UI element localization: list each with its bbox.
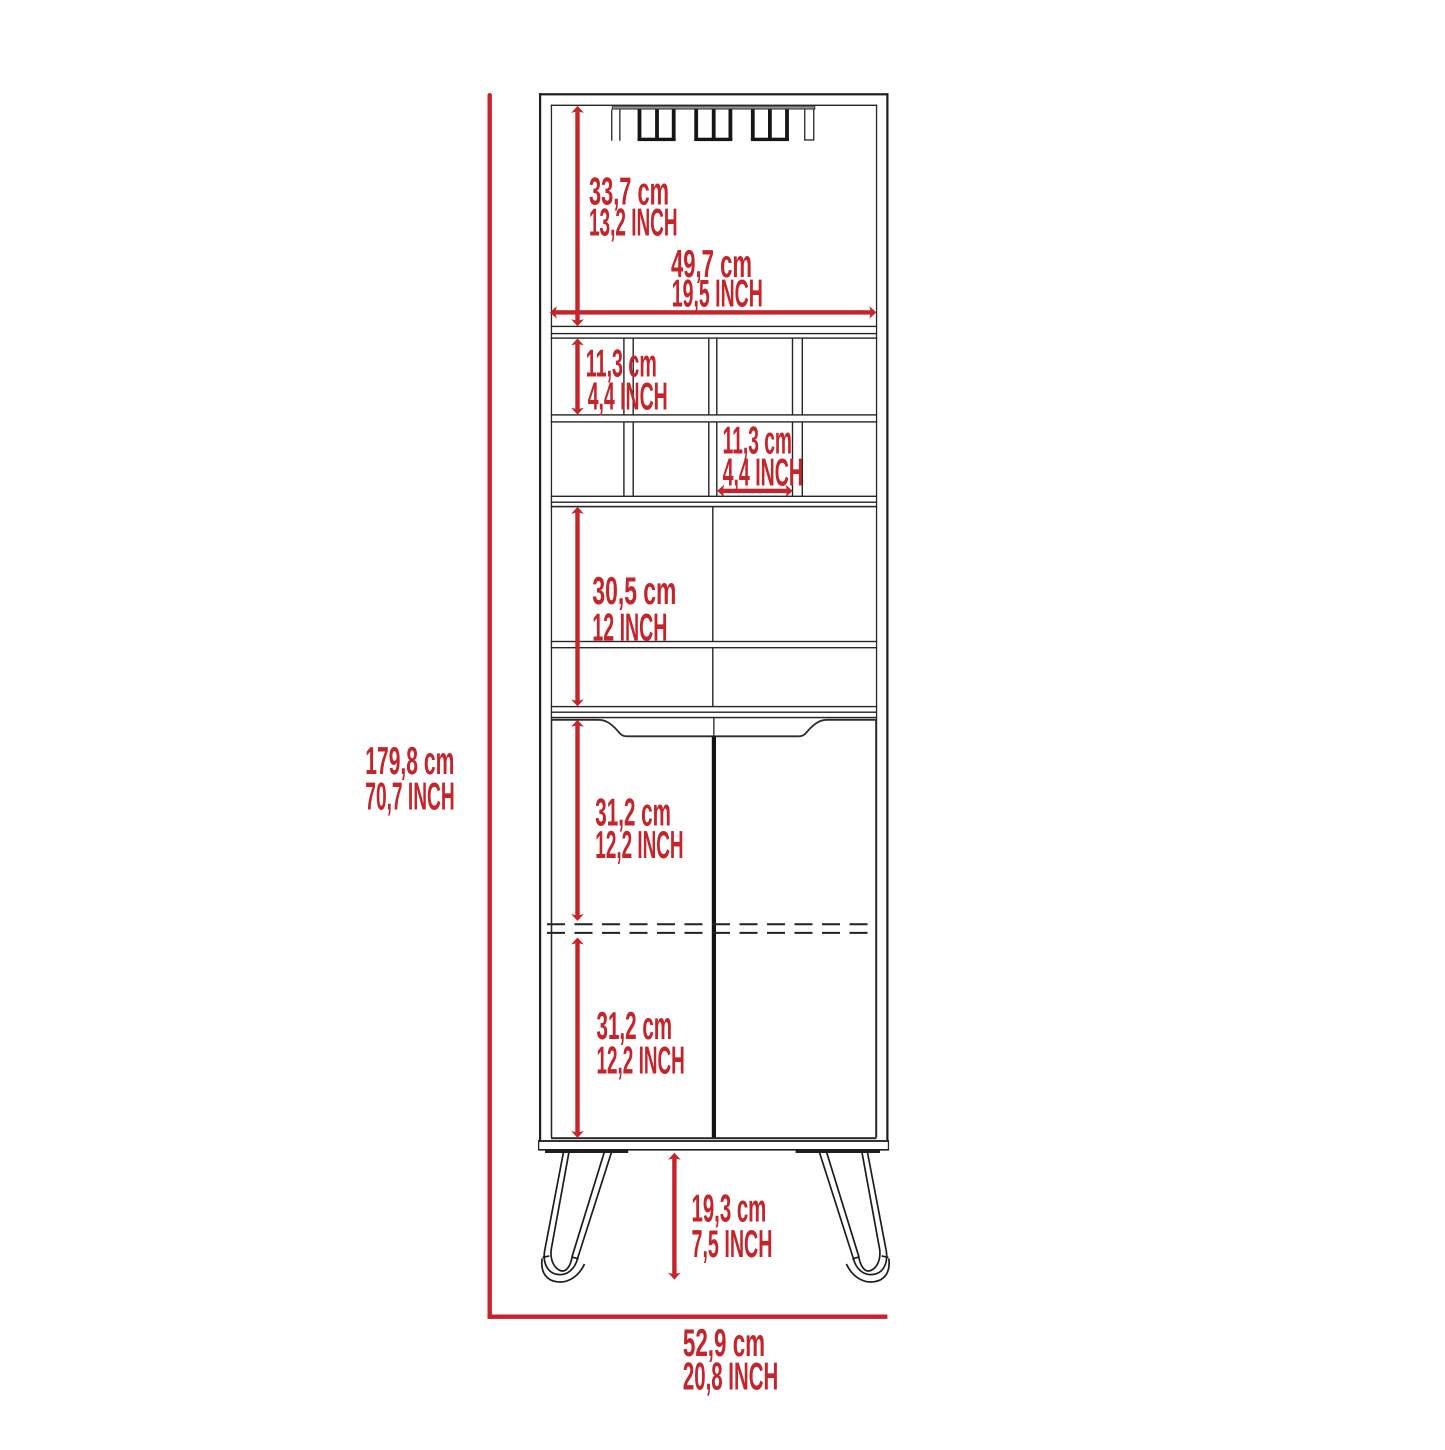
svg-text:7,5 INCH: 7,5 INCH	[692, 1223, 773, 1266]
svg-text:12 INCH: 12 INCH	[592, 606, 667, 649]
svg-text:13,2 INCH: 13,2 INCH	[589, 202, 678, 245]
svg-text:19,5 INCH: 19,5 INCH	[672, 272, 763, 315]
svg-text:12,2 INCH: 12,2 INCH	[595, 824, 683, 867]
svg-text:4,4 INCH: 4,4 INCH	[588, 376, 668, 419]
svg-text:12,2 INCH: 12,2 INCH	[597, 1039, 685, 1082]
svg-text:20,8 INCH: 20,8 INCH	[683, 1356, 778, 1399]
svg-text:70,7 INCH: 70,7 INCH	[365, 775, 454, 818]
svg-text:4,4 INCH: 4,4 INCH	[723, 452, 803, 495]
